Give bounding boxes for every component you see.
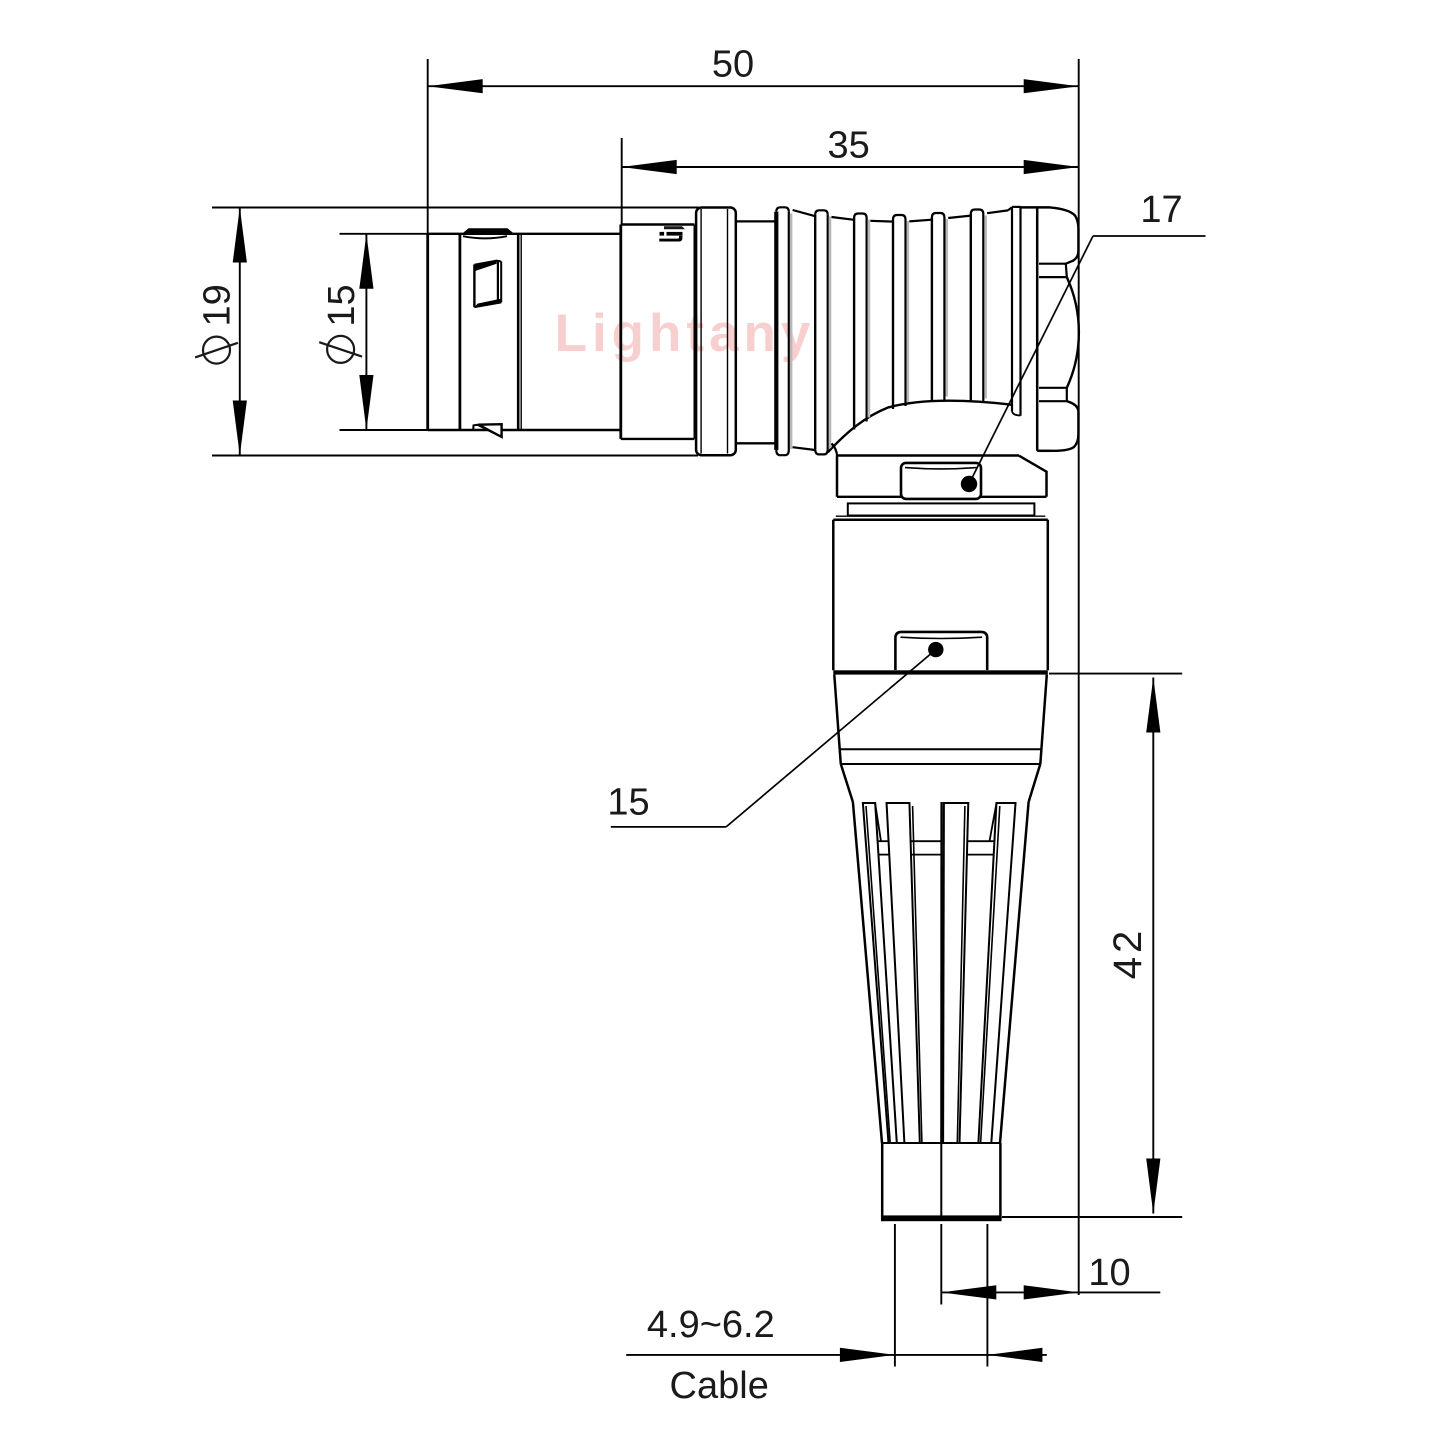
svg-text:15: 15 (607, 782, 649, 824)
svg-text:19: 19 (197, 284, 239, 326)
svg-text:10: 10 (1088, 1252, 1130, 1294)
svg-text:17: 17 (1140, 189, 1182, 231)
svg-text:42: 42 (1106, 927, 1150, 980)
svg-text:4.9~6.2: 4.9~6.2 (647, 1304, 775, 1346)
svg-text:15: 15 (321, 284, 363, 326)
svg-text:50: 50 (712, 44, 754, 86)
svg-text:Cable: Cable (670, 1365, 769, 1407)
svg-text:35: 35 (827, 125, 869, 167)
